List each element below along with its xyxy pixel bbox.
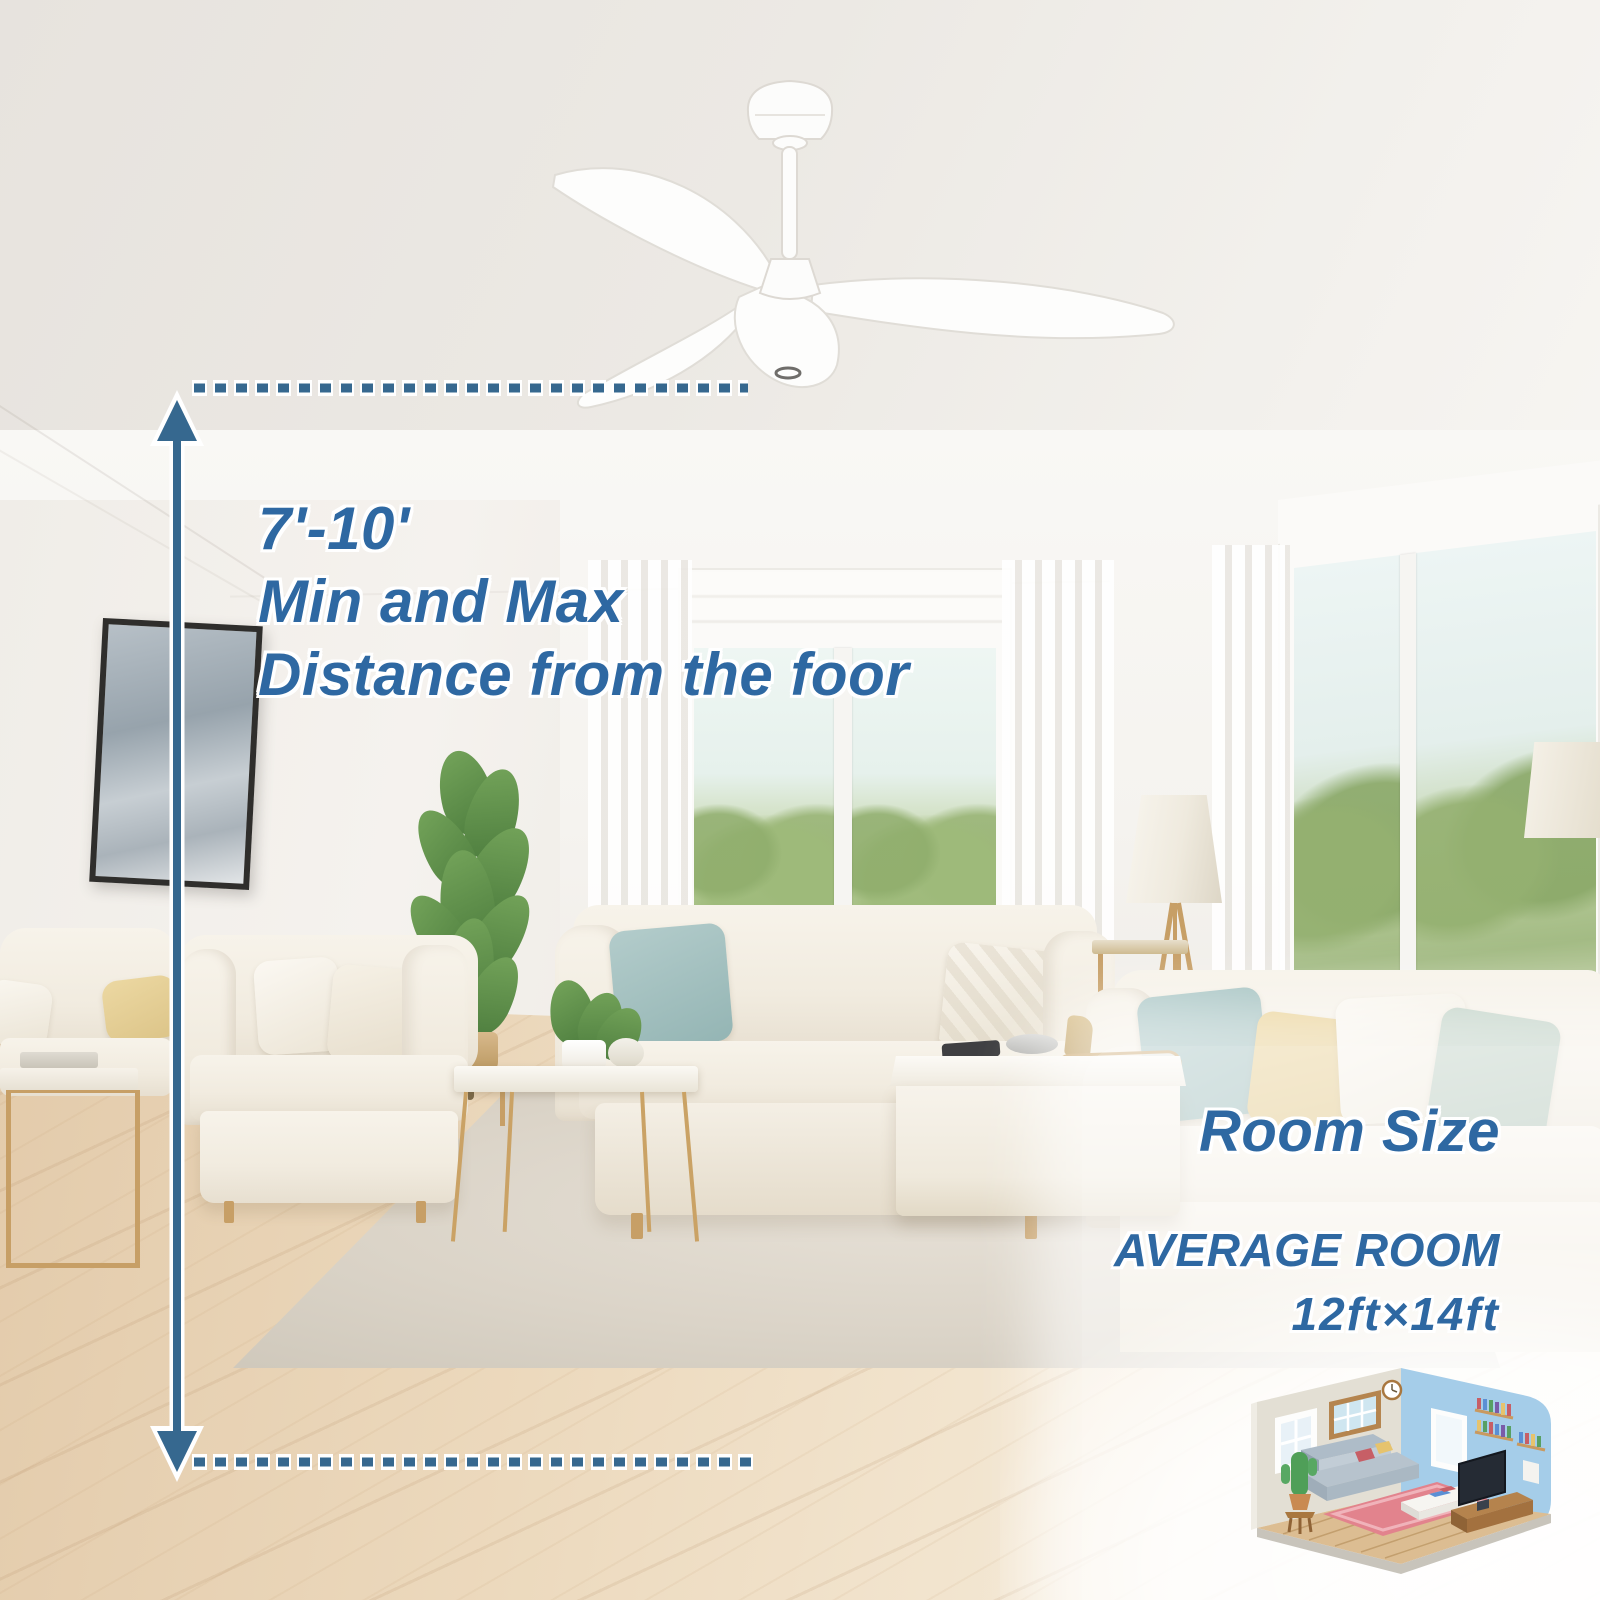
corner-lamp-shade	[1524, 742, 1600, 838]
room-size-illustration	[1205, 1352, 1595, 1600]
product-infographic-ceiling-fan: Room Size AVERAGE ROOM 12ft×14ft	[0, 0, 1600, 1600]
ceiling-fan	[515, 75, 1195, 415]
room-size-title: Room Size	[1114, 1098, 1500, 1165]
height-label-block: 7'-10' Min and Max Distance from the foo…	[258, 492, 909, 711]
room-size-dimensions: 12ft×14ft	[1114, 1287, 1500, 1341]
height-label-distance: Distance from the foor	[258, 638, 909, 711]
lamp-shade	[1126, 795, 1222, 903]
double-arrow-icon	[150, 390, 204, 1482]
height-label-range: 7'-10'	[258, 492, 909, 565]
bowl	[1006, 1034, 1058, 1054]
room-size-block: Room Size AVERAGE ROOM 12ft×14ft	[1114, 1098, 1500, 1341]
left-side-table	[0, 1040, 140, 1270]
height-label-minmax: Min and Max	[258, 565, 909, 638]
room-size-subtitle: AVERAGE ROOM	[1114, 1223, 1500, 1277]
books-on-table	[20, 1052, 98, 1068]
gold-decor	[1064, 1015, 1094, 1057]
